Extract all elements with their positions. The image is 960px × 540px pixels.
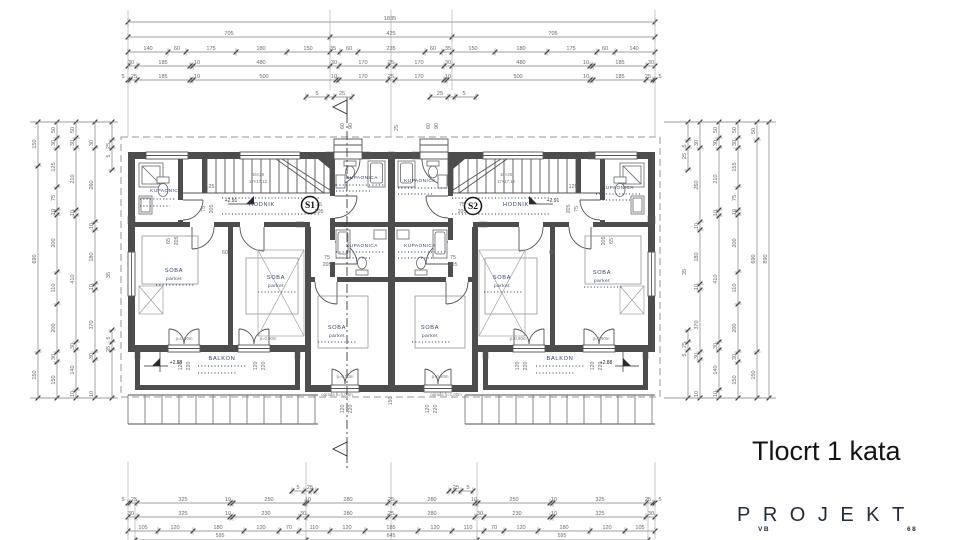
dim-label: 5 — [315, 91, 318, 97]
plan-label: 120 — [590, 362, 596, 371]
dim-label: 480 — [516, 60, 525, 66]
dim-label: 5 — [106, 154, 112, 157]
dim-label: 175 — [566, 46, 575, 52]
dim-label: 25 — [106, 143, 112, 149]
dim-label: 5 — [682, 144, 688, 147]
dim-label: 150 — [468, 46, 477, 52]
dim-label: 30 — [300, 511, 306, 517]
dim-label: 250 — [264, 497, 273, 503]
plan-label: 150 — [388, 397, 394, 406]
dim-label: 280 — [427, 511, 436, 517]
dim-label: 210 — [713, 174, 719, 183]
plan-label: KUPAONICA — [602, 185, 634, 190]
plan-label: 75 — [316, 202, 322, 208]
dim-label: 150 — [32, 139, 38, 148]
dim-label: 120 — [602, 525, 611, 531]
plan-label: SOBA — [328, 325, 346, 331]
dim-label: 5 — [121, 74, 124, 80]
dim-label: 25 — [106, 346, 112, 352]
dim-label: 155 — [732, 162, 738, 171]
dim-label: 180 — [256, 46, 265, 52]
dim-label: 30 — [89, 353, 95, 359]
dim-label: 150 — [751, 370, 757, 379]
plan-label: 75 — [324, 255, 330, 261]
dim-label: 10 — [583, 74, 589, 80]
dim-label: 125 — [51, 162, 57, 171]
dim-label: 370 — [694, 320, 700, 329]
dim-label: 25 — [339, 91, 345, 97]
dim-label: 10 — [89, 391, 95, 397]
dim-label: 105 — [138, 525, 147, 531]
dim-label: 10 — [225, 511, 231, 517]
dim-label: 5 — [682, 353, 688, 356]
dim-label: 25 — [453, 485, 459, 491]
dim-label: 70 — [491, 525, 497, 531]
plan-label: BALKON — [209, 356, 236, 362]
plan-label: 60 — [340, 123, 346, 129]
dim-label: 690 — [32, 254, 38, 263]
dim-label: 5 — [121, 497, 124, 503]
dim-label: 10 — [331, 74, 337, 80]
plan-label: 120 — [253, 362, 259, 371]
plan-label: KUPAONICA — [150, 188, 182, 193]
plan-label: KUPAONICA — [346, 175, 378, 180]
dim-label: 120 — [256, 525, 265, 531]
dim-label: 280 — [427, 497, 436, 503]
dim-label: 1835 — [384, 16, 396, 22]
dim-label: 260 — [694, 180, 700, 189]
dim-label: 5 — [296, 485, 299, 491]
dim-label: 30 — [713, 140, 719, 146]
plan-label: 645 — [387, 533, 396, 539]
dim-label: 30 — [694, 140, 700, 146]
dim-label: 185 — [158, 60, 167, 66]
dim-label: 25 — [682, 153, 688, 159]
dim-label: 30 — [713, 343, 719, 349]
dim-label: 30 — [128, 60, 134, 66]
plan-label: 16×28 — [500, 172, 513, 177]
plan-label: BALKON — [547, 356, 574, 362]
dim-label: 30 — [477, 511, 483, 517]
plan-label: 205 — [449, 262, 458, 268]
plan-label: 65 — [609, 238, 615, 244]
dim-label: 35 — [682, 269, 688, 275]
dim-label: 110 — [732, 284, 738, 293]
logo-text: PROJEKT — [737, 504, 957, 527]
plan-label: 17×17,12 — [497, 179, 516, 184]
drawing-canvas: 1835705425705140601751801503560235603515… — [0, 0, 960, 540]
dim-label: 10 — [732, 209, 738, 215]
dim-label: 30 — [70, 140, 76, 146]
dim-label: 280 — [343, 511, 352, 517]
dim-label: 10 — [583, 60, 589, 66]
dim-label: 105 — [635, 525, 644, 531]
dim-label: 25 — [307, 485, 313, 491]
dim-label: 140 — [70, 365, 76, 374]
plan-label: 220 — [348, 405, 354, 414]
plan-label: parket — [329, 333, 345, 338]
plan-label: 120 — [425, 405, 431, 414]
logo-sub-68: 68 — [907, 526, 917, 533]
dim-label: 10 — [713, 210, 719, 216]
plan-label: p=0,90m — [432, 374, 449, 379]
dim-label: 230 — [512, 511, 521, 517]
dim-label: 150 — [51, 375, 57, 384]
dim-label: 10 — [70, 391, 76, 397]
dim-label: 10 — [194, 74, 200, 80]
plan-label: 125 — [569, 184, 578, 190]
plan-label: 220 — [186, 362, 192, 371]
plan-label: 205 — [315, 209, 324, 215]
dim-label: 180 — [559, 525, 568, 531]
plan-label: +2.91 — [547, 198, 560, 204]
dim-label: 120 — [170, 525, 179, 531]
plan-label: 16×28 — [252, 172, 265, 177]
plan-label: KUPAONICA — [346, 243, 378, 248]
plan-label: 220 — [523, 362, 529, 371]
dim-label: 890 — [763, 254, 769, 263]
dim-label: 180 — [516, 46, 525, 52]
plan-label: 205 — [209, 205, 215, 214]
plan-label: 595 — [558, 533, 567, 539]
dim-label: 170 — [358, 74, 367, 80]
dim-label: 50 — [70, 127, 76, 133]
plan-label: 125 — [206, 184, 215, 190]
dim-label: 50 — [51, 127, 57, 133]
dim-label: 410 — [70, 274, 76, 283]
dim-label: 10 — [551, 497, 557, 503]
dim-label: 200 — [51, 323, 57, 332]
dim-label: 170 — [414, 74, 423, 80]
dim-label: 140 — [713, 365, 719, 374]
dim-label: 30 — [51, 354, 57, 360]
dim-label: 60 — [602, 46, 608, 52]
plan-label: 205 — [601, 237, 607, 246]
dim-label: 200 — [51, 238, 57, 247]
dim-label: 10 — [694, 223, 700, 229]
dim-label: 50 — [713, 127, 719, 133]
dim-label: 10 — [225, 497, 231, 503]
plan-label: ograda h=1,00m — [430, 392, 462, 397]
dim-label: 60 — [174, 46, 180, 52]
dim-label: 30 — [732, 140, 738, 146]
dim-label: 120 — [516, 525, 525, 531]
dim-label: 140 — [143, 46, 152, 52]
dim-label: 30 — [51, 140, 57, 146]
dim-label: 170 — [414, 60, 423, 66]
dim-label: 30 — [648, 511, 654, 517]
dim-label: 280 — [343, 497, 352, 503]
plan-label: 65 — [166, 238, 172, 244]
dim-label: 10 — [713, 391, 719, 397]
dim-label: 25 — [131, 74, 137, 80]
plan-label: 60 — [222, 250, 228, 256]
dim-label: 25 — [645, 74, 651, 80]
dim-label: 30 — [89, 140, 95, 146]
dim-label: 230 — [261, 511, 270, 517]
dim-label: 10 — [194, 60, 200, 66]
logo-sub-vb: VB — [758, 526, 770, 533]
dim-label: 75 — [51, 195, 57, 201]
dim-label: 10 — [551, 511, 557, 517]
plan-label: 75 — [450, 255, 456, 261]
plan-label: p=0,90m — [260, 336, 277, 341]
dim-label: 690 — [751, 254, 757, 263]
plan-label: 120 — [178, 362, 184, 371]
dim-label: 185 — [158, 74, 167, 80]
plan-label: 205 — [458, 209, 467, 215]
dim-label: 10 — [70, 210, 76, 216]
dim-label: 185 — [615, 60, 624, 66]
plan-label: SOBA — [165, 268, 183, 274]
plan-label: HODNIK — [249, 202, 275, 208]
dim-label: 120 — [430, 525, 439, 531]
dim-label: 10 — [89, 223, 95, 229]
plan-label: parket — [422, 333, 438, 338]
dim-label: 705 — [548, 31, 557, 37]
dim-label: 30 — [732, 354, 738, 360]
dim-label: 500 — [513, 74, 522, 80]
dim-label: 325 — [595, 511, 604, 517]
plan-label: parket — [166, 276, 182, 281]
dim-label: 140 — [629, 46, 638, 52]
dim-label: 10 — [89, 284, 95, 290]
dim-label: 10 — [445, 74, 451, 80]
dim-label: 200 — [732, 238, 738, 247]
plan-label: SOBA — [493, 275, 511, 281]
plan-label: p=0,90m — [593, 336, 610, 341]
dim-label: 30 — [331, 60, 337, 66]
dim-label: 50 — [751, 128, 757, 134]
plan-label: 75 — [201, 206, 207, 212]
plan-label: SOBA — [267, 275, 285, 281]
dim-label: 250 — [509, 497, 518, 503]
dim-label: 500 — [259, 74, 268, 80]
dim-label: 110 — [310, 525, 319, 531]
dim-label: 5 — [106, 336, 112, 339]
dim-label: 30 — [648, 60, 654, 66]
plan-label: 25 — [394, 125, 400, 131]
dim-label: 35 — [330, 46, 336, 52]
dim-label: 30 — [70, 343, 76, 349]
dim-label: 410 — [713, 274, 719, 283]
dim-label: 5 — [658, 74, 661, 80]
plan-label: 90 — [348, 123, 354, 129]
dim-label: 370 — [89, 320, 95, 329]
plan-label: 205 — [323, 262, 332, 268]
dim-label: 150 — [32, 370, 38, 379]
plan-label: 220 — [261, 362, 267, 371]
dim-label: 60 — [430, 46, 436, 52]
plan-label: SOBA — [421, 325, 439, 331]
dim-label: 325 — [178, 497, 187, 503]
plan-label: 75 — [459, 202, 465, 208]
dim-label: 70 — [286, 525, 292, 531]
dim-label: 705 — [224, 31, 233, 37]
plan-label: 75 — [574, 206, 580, 212]
dim-label: 110 — [464, 525, 473, 531]
plan-label: SOBA — [593, 270, 611, 276]
plan-label: parket — [268, 283, 284, 288]
dim-label: 25 — [437, 91, 443, 97]
dim-label: 180 — [213, 525, 222, 531]
dim-label: 10 — [694, 284, 700, 290]
plan-label: 120 — [515, 362, 521, 371]
plan-label: 120 — [340, 405, 346, 414]
dim-label: 35 — [106, 272, 112, 278]
dim-label: 110 — [51, 284, 57, 293]
plan-label: S2 — [468, 202, 478, 212]
dim-label: 200 — [732, 323, 738, 332]
plan-label: parket — [494, 283, 510, 288]
dim-label: 5 — [462, 91, 465, 97]
dim-label: 150 — [303, 46, 312, 52]
dim-label: 25 — [682, 342, 688, 348]
dim-label: 30 — [128, 511, 134, 517]
plan-label: 220 — [433, 405, 439, 414]
dim-label: 5 — [466, 485, 469, 491]
plan-label: 17×17,12 — [249, 179, 268, 184]
plan-label: p=0,90m — [176, 336, 193, 341]
plan-label: 205 — [566, 205, 572, 214]
plan-label: 220 — [598, 362, 604, 371]
drawing-title: Tlocrt 1 kata — [752, 436, 901, 467]
plan-label: p=0,90m — [510, 336, 527, 341]
plan-label: 90 — [434, 123, 440, 129]
dim-label: 30 — [445, 60, 451, 66]
dim-label: 325 — [595, 497, 604, 503]
plan-label: p=0,90m — [337, 374, 354, 379]
projekt-logo: PROJEKT VB 68 — [737, 504, 957, 538]
dim-label: 210 — [70, 174, 76, 183]
dim-label: 10 — [51, 209, 57, 215]
dim-label: 150 — [732, 375, 738, 384]
dim-label: 325 — [178, 511, 187, 517]
plan-label: KUPAONICA — [404, 178, 436, 183]
plan-label: 60 — [426, 123, 432, 129]
entry-porch — [334, 139, 448, 152]
plan-label: ograda h=1,00m — [321, 392, 353, 397]
plan-label: parket — [594, 278, 610, 283]
dim-label: 30 — [694, 353, 700, 359]
plan-label: +2.91 — [225, 198, 238, 204]
dim-label: 185 — [615, 74, 624, 80]
plan-label: 205 — [174, 237, 180, 246]
dim-label: 60 — [346, 46, 352, 52]
dim-label: 170 — [358, 60, 367, 66]
dim-label: 75 — [732, 195, 738, 201]
dim-label: 50 — [732, 127, 738, 133]
dim-label: 175 — [206, 46, 215, 52]
dim-label: 120 — [342, 525, 351, 531]
plan-label: 60 — [549, 250, 555, 256]
plan-label: 595 — [216, 533, 225, 539]
plan-label: KUPAONICA — [404, 243, 436, 248]
dim-label: 260 — [89, 180, 95, 189]
dim-label: 180 — [694, 252, 700, 261]
dim-label: 35 — [445, 46, 451, 52]
dim-label: 5 — [658, 497, 661, 503]
plan-label: HODNIK — [503, 202, 529, 208]
dim-label: 480 — [256, 60, 265, 66]
dim-label: 10 — [471, 497, 477, 503]
dim-label: 10 — [694, 391, 700, 397]
dim-label: 180 — [89, 252, 95, 261]
dim-label: 25 — [131, 497, 137, 503]
